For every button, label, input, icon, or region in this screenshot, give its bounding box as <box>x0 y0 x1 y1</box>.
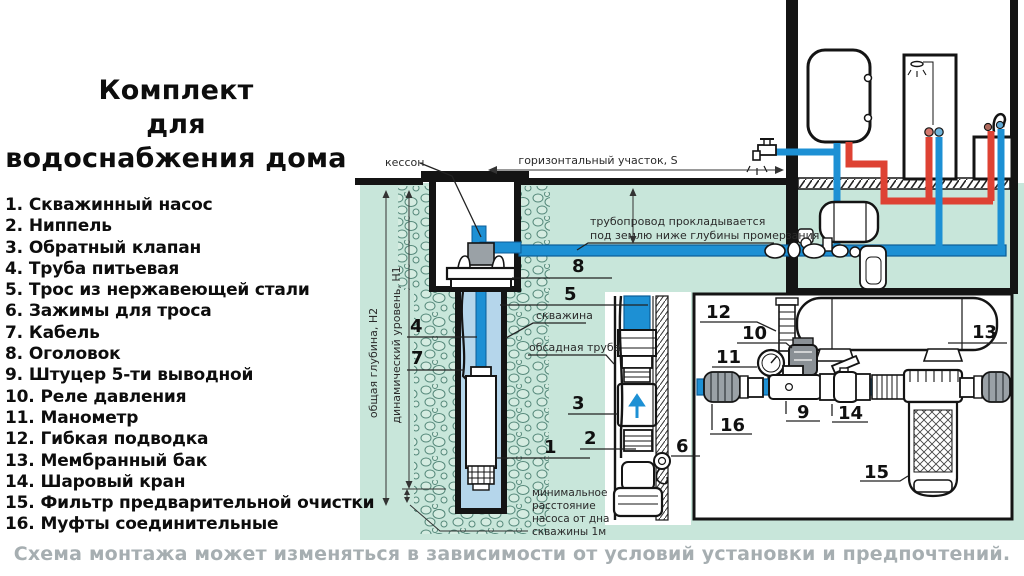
dynamic-level-label: динамический уровень, H1 <box>390 266 403 423</box>
pre-filter <box>904 370 962 496</box>
min-distance-line3: насоса от дна <box>532 513 609 525</box>
rope-clamp <box>654 453 670 469</box>
list-item: 9.Штуцер 5-ти выводной <box>5 365 361 386</box>
callout-5: 5 <box>564 284 577 305</box>
inset-pump-connection <box>605 292 691 525</box>
casing-wall-hatched <box>656 296 668 520</box>
submersible-pump <box>466 367 496 490</box>
list-item: 7.Кабель <box>5 323 361 344</box>
caisson-cap <box>421 171 529 182</box>
caisson-label: кессон <box>385 156 424 169</box>
callout-10: 10 <box>742 323 767 344</box>
list-item: 3.Обратный клапан <box>5 238 361 259</box>
title-line-3: водоснабжения дома <box>0 142 352 176</box>
list-item: 4.Труба питьевая <box>5 259 361 280</box>
well-pipe <box>476 291 486 373</box>
list-item: 8.Оголовок <box>5 344 361 365</box>
callout-1: 1 <box>544 437 557 458</box>
list-item: 15.Фильтр предварительной очистки <box>5 493 361 514</box>
basement-filter <box>860 246 886 289</box>
min-distance-line2: расстояние <box>532 500 596 512</box>
main-supply-pipe <box>519 245 1006 256</box>
min-distance-line1: минимальное <box>532 487 607 499</box>
callout-8: 8 <box>572 256 585 277</box>
shower-head-icon <box>911 62 923 67</box>
list-item: 2.Ниппель <box>5 216 361 237</box>
well-label: скважина <box>536 309 593 322</box>
callout-4: 4 <box>410 316 423 337</box>
callout-12: 12 <box>706 302 731 323</box>
callout-9: 9 <box>797 402 810 423</box>
buried-pipe-label-1: трубопровод прокладывается <box>590 215 765 228</box>
nipple <box>624 430 652 451</box>
callout-14: 14 <box>838 403 863 424</box>
buried-pipe-label-2: под землю ниже глубины промерзания <box>590 229 819 242</box>
list-item: 1.Скважинный насос <box>5 195 361 216</box>
water-heater <box>808 50 872 142</box>
horizontal-span-label: горизонтальный участок, S <box>518 154 677 167</box>
title-line-1: Комплект <box>0 74 352 108</box>
list-item: 14.Шаровый кран <box>5 472 361 493</box>
total-depth-label: общая глубина, H2 <box>367 308 380 418</box>
list-item: 13.Мембранный бак <box>5 451 361 472</box>
list-item: 12.Гибкая подводка <box>5 429 361 450</box>
list-item: 5.Трос из нержавеющей стали <box>5 280 361 301</box>
callout-16: 16 <box>720 415 745 436</box>
filter-mesh <box>914 410 952 472</box>
corrugated-connector <box>872 375 904 399</box>
well-borehole <box>455 291 507 514</box>
detail-pipe <box>624 296 650 332</box>
inset-pump-station: 12 10 11 13 9 14 16 15 <box>694 294 1012 519</box>
callout-7: 7 <box>411 348 424 369</box>
title-line-2: для <box>0 108 352 142</box>
callout-13: 13 <box>972 322 997 343</box>
gravel-right-upper <box>520 186 550 290</box>
footer-note: Схема монтажа может изменяться в зависим… <box>0 543 1024 565</box>
parts-list: 1.Скважинный насос 2.Ниппель 3.Обратный … <box>5 195 361 536</box>
callout-2: 2 <box>584 428 597 449</box>
list-item: 10.Реле давления <box>5 387 361 408</box>
min-distance-line4: скважины 1м <box>532 526 606 538</box>
page-title: Комплект для водоснабжения дома <box>0 74 352 176</box>
list-item: 11.Манометр <box>5 408 361 429</box>
list-item: 6.Зажимы для троса <box>5 301 361 322</box>
casing-label: обсадная труба <box>529 341 620 354</box>
callout-15: 15 <box>864 462 889 483</box>
callout-6: 6 <box>676 436 689 457</box>
list-item: 16.Муфты соединительные <box>5 514 361 535</box>
ground-surface <box>355 178 788 185</box>
infographic-root: 12 10 11 13 9 14 16 15 общая глубина, H2… <box>0 0 1024 576</box>
callout-11: 11 <box>716 347 741 368</box>
callout-3: 3 <box>572 393 585 414</box>
